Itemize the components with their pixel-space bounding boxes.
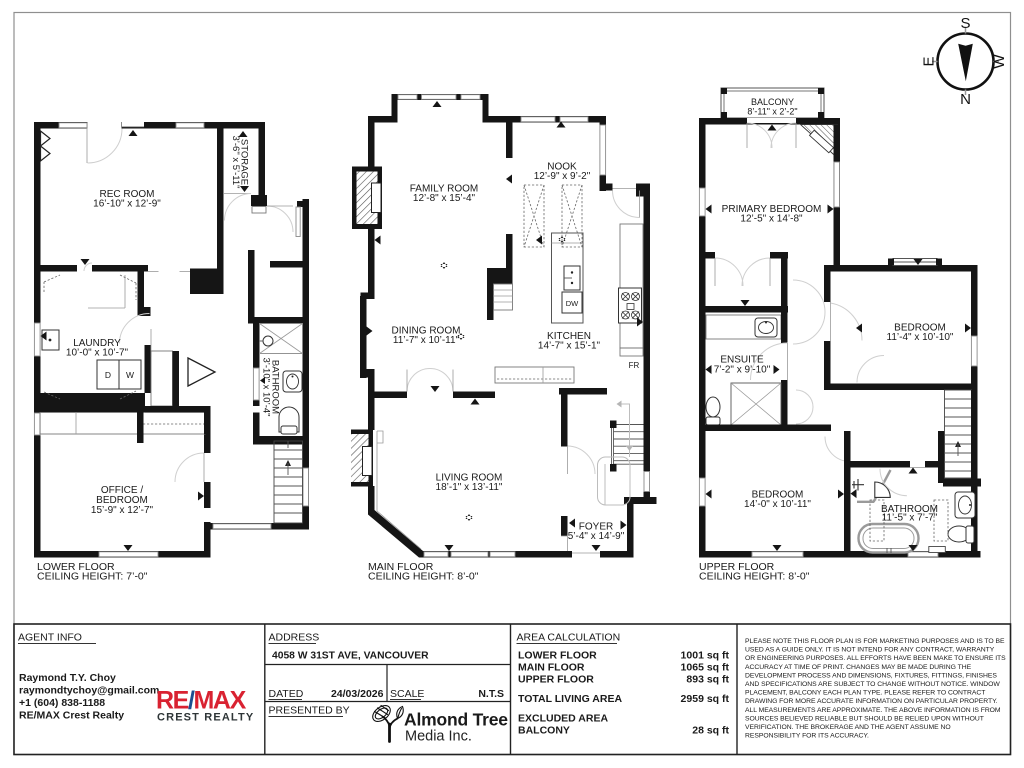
svg-text:7’-2" x 9’-10": 7’-2" x 9’-10" [714,365,771,376]
svg-text:Almond Tree: Almond Tree [404,710,508,730]
svg-text:1001 sq ft: 1001 sq ft [681,650,730,662]
svg-text:AREA CALCULATION: AREA CALCULATION [517,632,621,644]
svg-text:18’-1" x 13’-11": 18’-1" x 13’-11" [436,482,503,493]
svg-text:ACCURACY AT TIME OF PRINT. CHA: ACCURACY AT TIME OF PRINT. CHANGES MAY B… [745,664,972,671]
svg-text:12’-8" x 15’-4": 12’-8" x 15’-4" [413,193,476,204]
svg-text:3’-10" x 10’-4": 3’-10" x 10’-4" [261,357,272,416]
svg-text:TOTAL LIVING AREA: TOTAL LIVING AREA [518,693,622,705]
svg-text:14’-0" x 10’-11": 14’-0" x 10’-11" [744,499,811,510]
svg-text:8’-11" x 2’-2": 8’-11" x 2’-2" [747,107,797,117]
svg-text:W: W [126,370,134,380]
svg-text:CEILING HEIGHT: 8’-0": CEILING HEIGHT: 8’-0" [368,571,479,583]
svg-text:W: W [991,54,1008,69]
svg-text:AGENT INFO: AGENT INFO [18,632,82,644]
svg-text:893 sq ft: 893 sq ft [686,674,729,686]
svg-text:AND SPECIFICATIONS ARE SUBJECT: AND SPECIFICATIONS ARE SUBJECT TO CHANGE… [745,681,1000,688]
svg-text:USED AS A GUIDE ONLY. IT IS NO: USED AS A GUIDE ONLY. IT IS NOT INTEND F… [745,647,995,654]
svg-text:OR ENGINEERING PURPOSES. ALL E: OR ENGINEERING PURPOSES. ALL EFFORTS HAV… [745,655,1006,662]
svg-text:14’-7" x 15’-1": 14’-7" x 15’-1" [538,341,601,352]
svg-text:28 sq ft: 28 sq ft [692,725,729,737]
svg-text:E: E [921,56,938,66]
svg-text:Media Inc.: Media Inc. [405,729,472,745]
svg-text:CEILING HEIGHT: 8’-0": CEILING HEIGHT: 8’-0" [699,571,810,583]
svg-text:12’-9" x 9’-2": 12’-9" x 9’-2" [534,171,591,182]
svg-text:EXCLUDED AREA: EXCLUDED AREA [518,713,608,725]
svg-text:+1 (604) 838-1188: +1 (604) 838-1188 [19,697,105,709]
svg-text:5’-4" x 14’-9": 5’-4" x 14’-9" [568,531,625,542]
svg-text:SCALE: SCALE [390,688,424,700]
svg-text:12’-5" x 14’-8": 12’-5" x 14’-8" [740,214,803,225]
svg-text:BALCONY: BALCONY [751,97,794,107]
svg-text:11’-7" x 10’-11": 11’-7" x 10’-11" [393,335,460,346]
svg-text:11’-4" x 10’-10": 11’-4" x 10’-10" [887,332,954,343]
svg-text:16’-10" x 12’-9": 16’-10" x 12’-9" [93,199,161,210]
svg-text:LOWER FLOOR: LOWER FLOOR [518,650,597,662]
svg-text:RE/MAX Crest Realty: RE/MAX Crest Realty [19,710,124,722]
svg-text:11’-5" x 7’-7": 11’-5" x 7’-7" [882,513,938,524]
svg-text:Raymond T.Y. Choy: Raymond T.Y. Choy [19,672,116,684]
svg-text:RESPONSIBILITY FOR ITS ACCURAC: RESPONSIBILITY FOR ITS ACCURACY. [745,733,869,740]
svg-text:raymondtychoy@gmail.com: raymondtychoy@gmail.com [19,685,159,697]
svg-text:SOURCES BELIEVED RELIABLE BUT: SOURCES BELIEVED RELIABLE BUT SHOULD BE … [745,715,984,722]
svg-text:4058 W 31ST AVE, VANCOUVER: 4058 W 31ST AVE, VANCOUVER [272,651,429,662]
svg-text:10’-0" x 10’-7": 10’-0" x 10’-7" [66,348,129,359]
svg-text:ALL MEASUREMENTS ARE APPROXIMA: ALL MEASUREMENTS ARE APPROXIMATE. THE AB… [745,707,1001,714]
svg-text:15’-9" x 12’-7": 15’-9" x 12’-7" [91,505,154,516]
svg-text:2959 sq ft: 2959 sq ft [681,693,730,705]
svg-text:3’-6" x 5’-11": 3’-6" x 5’-11" [230,135,241,188]
svg-text:BALCONY: BALCONY [518,725,570,737]
svg-text:N: N [960,91,971,108]
svg-text:PLACEMENT, BALCONY EACH PLAN T: PLACEMENT, BALCONY EACH PLAN TYPE. PLEAS… [745,690,985,697]
svg-text:24/03/2026: 24/03/2026 [331,688,384,700]
svg-text:N.T.S: N.T.S [478,688,504,700]
svg-text:CREST REALTY: CREST REALTY [157,712,254,724]
svg-text:PLEASE NOTE THIS FLOOR PLAN IS: PLEASE NOTE THIS FLOOR PLAN IS FOR MARKE… [745,638,1005,645]
svg-text:ADDRESS: ADDRESS [269,632,320,644]
svg-text:FR: FR [629,361,640,370]
svg-text:D: D [105,370,111,380]
svg-text:DEVELOPMENT PROCESS AND DIMENS: DEVELOPMENT PROCESS AND DIMENSIONS, FIXT… [745,672,997,679]
svg-text:DATED: DATED [269,688,304,700]
svg-text:RE/MAX: RE/MAX [156,687,247,715]
svg-text:MAIN FLOOR: MAIN FLOOR [518,662,585,674]
svg-text:S: S [960,15,970,32]
svg-text:1065 sq ft: 1065 sq ft [681,662,730,674]
svg-text:CEILING HEIGHT: 7’-0": CEILING HEIGHT: 7’-0" [37,571,148,583]
svg-text:DW: DW [566,299,579,308]
svg-text:UPPER FLOOR: UPPER FLOOR [518,674,594,686]
svg-text:PRESENTED BY: PRESENTED BY [269,705,350,717]
svg-text:VERIFICATION. THE BROKERAGE AN: VERIFICATION. THE BROKERAGE AND THE AGEN… [745,724,951,731]
svg-text:DRAWING FOR MORE ACCURATE INFO: DRAWING FOR MORE ACCURATE INFORMATION ON… [745,698,998,705]
